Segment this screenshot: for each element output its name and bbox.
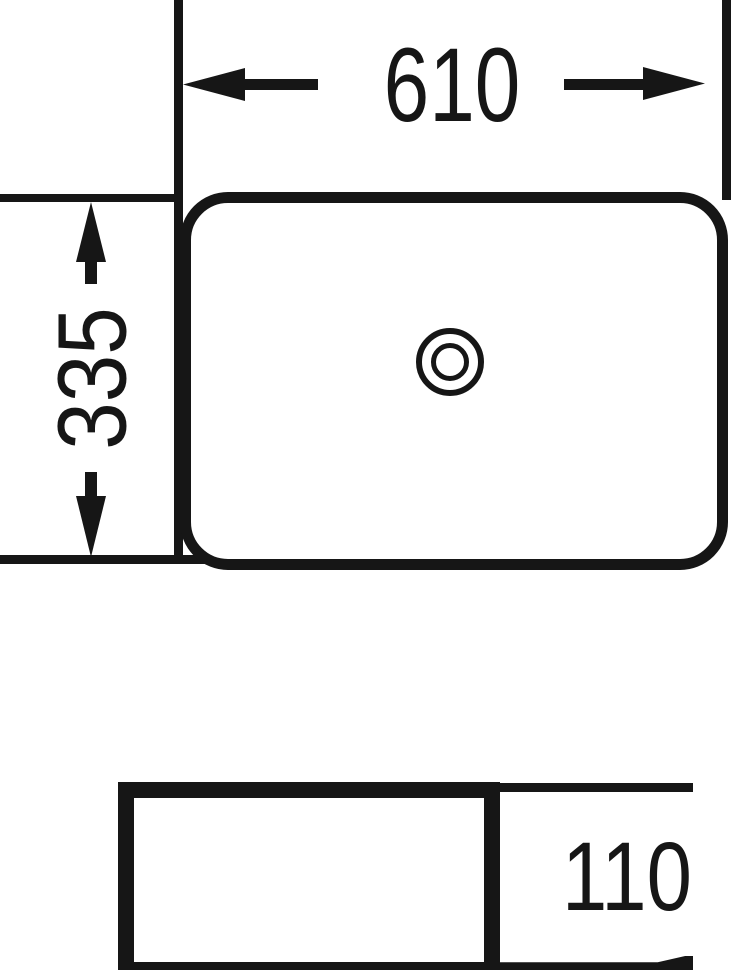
depth-arrowhead-up — [76, 202, 106, 262]
width-extension-line-right — [722, 0, 731, 200]
basin-side-view-outline — [118, 782, 500, 970]
depth-arrowhead-down — [76, 496, 106, 557]
depth-dimension-label: 335 — [44, 291, 141, 467]
depth-extension-line-bottom — [0, 555, 210, 564]
drain-hole-inner-circle — [431, 343, 469, 381]
width-arrowhead-left — [183, 68, 245, 101]
height-extension-line-top — [497, 783, 693, 792]
basin-dimension-drawing: 610 335 110 — [0, 0, 744, 970]
height-extension-line-bottom — [497, 956, 693, 970]
width-arrowhead-right — [643, 67, 705, 100]
height-dimension-label: 110 — [543, 828, 711, 925]
width-arrow-shaft-left — [238, 79, 318, 90]
depth-arrow-shaft-down — [85, 472, 97, 500]
width-arrow-shaft-right — [564, 79, 646, 90]
depth-arrow-shaft-up — [85, 256, 97, 284]
depth-extension-line-top — [0, 194, 183, 202]
width-dimension-label: 610 — [374, 33, 530, 138]
